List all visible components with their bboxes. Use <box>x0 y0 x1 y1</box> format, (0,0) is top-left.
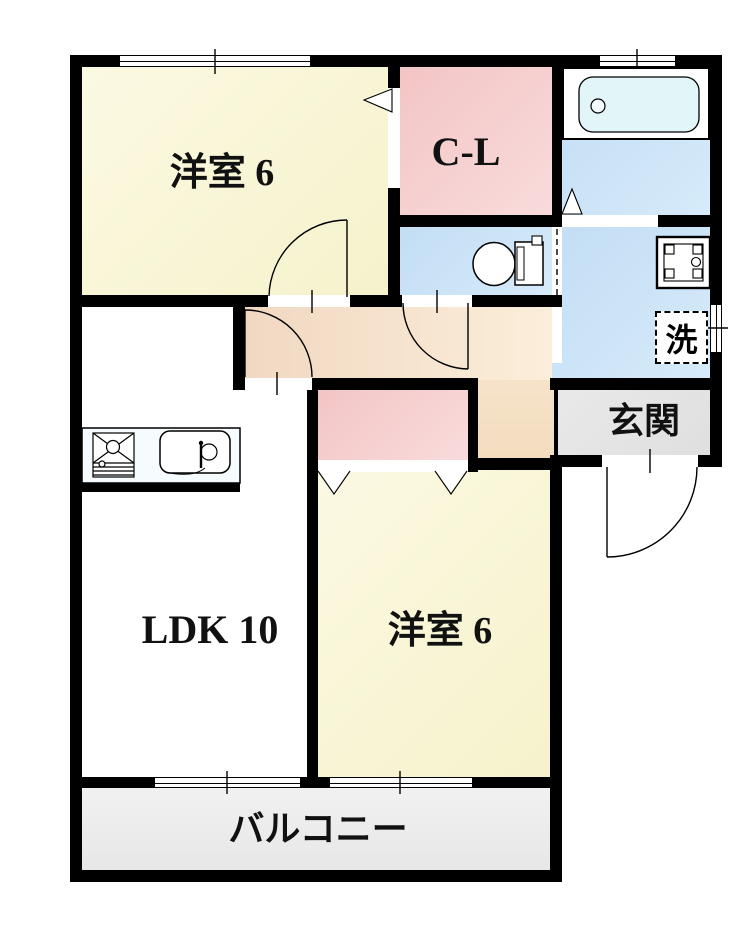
washroom-partition-gap <box>552 227 562 295</box>
bathtub-area <box>562 67 710 140</box>
window-sash-line <box>330 783 472 784</box>
kitchen-counter <box>82 428 240 492</box>
room-toilet <box>400 227 552 295</box>
door-opening-toilet <box>402 295 472 307</box>
wall <box>552 67 562 215</box>
door-opening-entrance <box>602 455 698 467</box>
room-label-bedroom-bottom: 洋室 6 <box>388 612 493 650</box>
washroom-entry-opening <box>552 307 562 363</box>
room-label-laundry: 洗 <box>665 315 697 361</box>
wall <box>468 378 478 470</box>
wall <box>307 378 318 788</box>
wall <box>550 378 722 390</box>
window-sash-line <box>120 61 310 62</box>
wall <box>710 55 722 467</box>
room-closet-bottom <box>318 390 468 460</box>
wall <box>70 777 562 788</box>
kitchen-sink-icon <box>160 431 230 474</box>
window-symbol <box>600 55 675 67</box>
window-sash-line <box>716 305 717 352</box>
room-label-bedroom-top: 洋室 6 <box>170 154 275 192</box>
room-label-entrance: 玄関 <box>608 403 680 439</box>
stove-icon <box>93 433 134 477</box>
wall <box>468 458 562 470</box>
hallway <box>245 307 552 380</box>
closet-sliding-opening <box>318 460 468 472</box>
window-symbol <box>710 305 722 352</box>
wall <box>388 215 710 227</box>
hallway-entrance-strip <box>478 380 554 458</box>
window-sash-line <box>600 61 675 62</box>
entrance-step-line <box>554 390 558 455</box>
wall <box>233 295 245 390</box>
room-label-ldk: LDK 10 <box>142 610 279 650</box>
laundry-spot: 洗 <box>655 311 708 364</box>
door-opening-ldk <box>245 378 312 390</box>
floorplan: 洋室 6 C-L 玄関 LDK 10 洋室 6 バルコニー 洗 <box>0 0 752 938</box>
room-label-balcony: バルコニー <box>228 811 407 847</box>
door-opening-bathroom <box>562 215 658 227</box>
door-opening-bedroom-top <box>268 295 350 307</box>
wall <box>550 455 562 882</box>
window-symbol <box>330 777 472 788</box>
closet-opening <box>388 88 400 188</box>
door-arc-entrance <box>607 467 697 557</box>
window-sash-line <box>155 783 300 784</box>
wall <box>70 870 562 882</box>
window-symbol <box>155 777 300 788</box>
room-label-closet-cl: C-L <box>432 132 501 172</box>
window-symbol <box>120 55 310 67</box>
wall <box>70 55 82 882</box>
